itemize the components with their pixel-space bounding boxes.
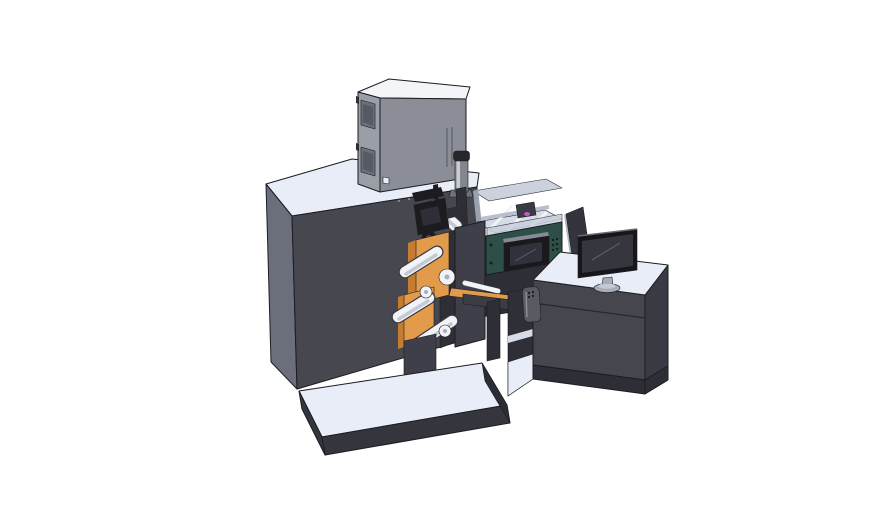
vent-dot	[552, 244, 554, 246]
electrical-box	[356, 79, 470, 192]
roller-end-center	[424, 290, 428, 294]
cylinder-cap	[454, 151, 470, 161]
electrical-box-right-face	[380, 98, 466, 192]
vent-dot	[556, 248, 558, 250]
vent-dot	[556, 243, 558, 245]
top-screw-dot	[408, 198, 410, 200]
cylinder-highlight	[457, 160, 461, 191]
vent-dot	[556, 238, 558, 240]
roller-end-center	[445, 275, 450, 280]
vent-dot	[552, 249, 554, 251]
pendant-body	[522, 286, 541, 322]
box-hinge	[356, 143, 359, 151]
pendant-highlight	[526, 292, 527, 317]
support-leg	[487, 299, 500, 361]
box-hinge	[356, 96, 359, 104]
vent-dot	[552, 239, 554, 241]
pendant-button	[532, 295, 534, 297]
magenta-cartridge	[524, 212, 530, 216]
panel-screw	[490, 244, 493, 247]
box-label-plate	[383, 177, 389, 184]
top-screw-dot	[398, 200, 400, 202]
monitor-stand-base-top	[599, 283, 616, 289]
panel-screw	[490, 262, 493, 265]
pendant-button	[532, 291, 534, 293]
pendant-button	[528, 296, 530, 298]
desk-front-face	[533, 280, 645, 380]
cad-render-canvas	[0, 0, 888, 522]
roller-end-center	[443, 329, 447, 333]
label-press-scene	[0, 0, 888, 522]
pendant-button	[528, 292, 530, 294]
